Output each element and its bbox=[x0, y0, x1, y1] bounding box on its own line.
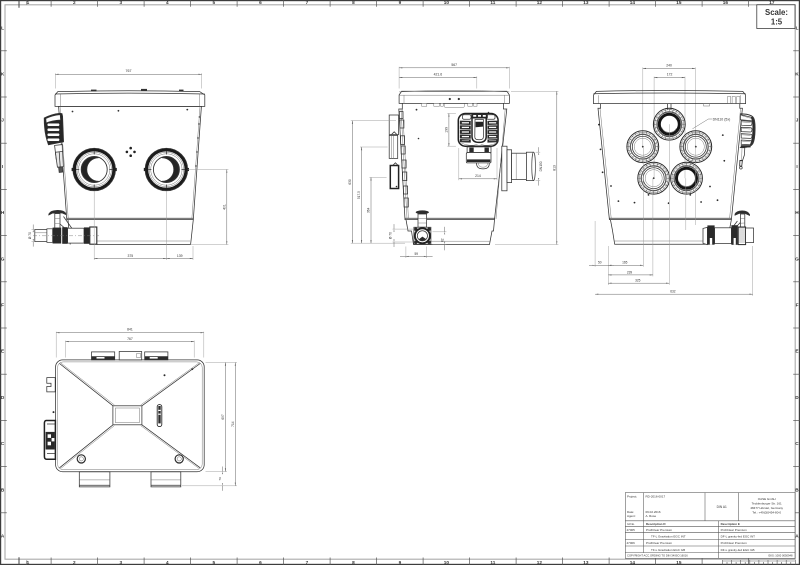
svg-text:Tel.: +49(0)5454-80-0: Tel.: +49(0)5454-80-0 bbox=[752, 511, 781, 515]
svg-text:3: 3 bbox=[119, 560, 122, 565]
svg-text:240: 240 bbox=[666, 63, 672, 67]
svg-text:EKS: 1000 0050948: EKS: 1000 0050948 bbox=[768, 554, 793, 558]
svg-text:OASE GmbH: OASE GmbH bbox=[758, 497, 776, 501]
svg-text:16: 16 bbox=[723, 0, 729, 5]
svg-text:J: J bbox=[1, 118, 4, 123]
svg-text:ProfiClear Premium: ProfiClear Premium bbox=[721, 541, 748, 545]
svg-text:DF-L gravity-fed EGC GB: DF-L gravity-fed EGC GB bbox=[721, 548, 755, 552]
svg-text:8: 8 bbox=[352, 0, 355, 5]
svg-text:5: 5 bbox=[212, 560, 215, 565]
svg-text:59: 59 bbox=[415, 252, 419, 256]
svg-text:813: 813 bbox=[552, 165, 556, 171]
svg-text:3: 3 bbox=[119, 0, 122, 5]
svg-text:714: 714 bbox=[231, 421, 235, 427]
svg-text:630: 630 bbox=[348, 179, 352, 185]
svg-text:ProfiClear Premium: ProfiClear Premium bbox=[646, 528, 673, 532]
svg-text:A. Rose: A. Rose bbox=[646, 514, 657, 518]
svg-text:15: 15 bbox=[676, 0, 682, 5]
svg-text:17: 17 bbox=[769, 0, 775, 5]
svg-text:L: L bbox=[796, 25, 799, 30]
svg-text:12: 12 bbox=[537, 560, 543, 565]
svg-text:J: J bbox=[796, 118, 799, 123]
svg-text:G: G bbox=[1, 256, 5, 261]
svg-text:Scale:: Scale: bbox=[765, 8, 788, 17]
svg-text:401: 401 bbox=[222, 204, 226, 210]
svg-text:199: 199 bbox=[445, 127, 449, 133]
svg-text:Agent:: Agent: bbox=[627, 514, 636, 518]
svg-text:214: 214 bbox=[475, 174, 481, 178]
svg-text:47005: 47005 bbox=[627, 528, 636, 532]
svg-text:I: I bbox=[796, 164, 797, 169]
svg-text:DN110 (5x): DN110 (5x) bbox=[713, 117, 731, 121]
svg-text:5: 5 bbox=[212, 0, 215, 5]
svg-text:10: 10 bbox=[444, 0, 450, 5]
svg-text:Description D: Description D bbox=[646, 522, 666, 526]
svg-text:DF-L gravity-fed EGC INT: DF-L gravity-fed EGC INT bbox=[721, 534, 756, 538]
svg-text:7: 7 bbox=[306, 560, 309, 565]
svg-text:COPYRIGHT ACC.ORDING TO DIN 34: COPYRIGHT ACC.ORDING TO DIN 34/ISO 16016 bbox=[627, 554, 688, 558]
svg-text:Ø 70: Ø 70 bbox=[28, 232, 32, 239]
svg-text:F: F bbox=[796, 303, 799, 308]
svg-text:325: 325 bbox=[635, 279, 641, 283]
svg-text:G: G bbox=[795, 256, 799, 261]
svg-text:4: 4 bbox=[166, 560, 169, 565]
svg-text:ProfiClear Premium: ProfiClear Premium bbox=[721, 528, 748, 532]
svg-text:2: 2 bbox=[73, 0, 76, 5]
svg-text:139: 139 bbox=[177, 254, 183, 258]
svg-text:6: 6 bbox=[259, 0, 262, 5]
svg-text:697: 697 bbox=[221, 414, 225, 420]
svg-text:1:5: 1:5 bbox=[771, 18, 783, 27]
svg-text:165: 165 bbox=[622, 261, 628, 265]
svg-text:15: 15 bbox=[676, 560, 682, 565]
svg-text:ProfiClear Premium: ProfiClear Premium bbox=[646, 541, 673, 545]
svg-text:14: 14 bbox=[630, 560, 636, 565]
svg-text:11: 11 bbox=[490, 560, 495, 565]
svg-text:172: 172 bbox=[667, 73, 673, 77]
svg-text:10: 10 bbox=[444, 560, 450, 565]
svg-text:4: 4 bbox=[166, 0, 169, 5]
svg-text:DIN A1: DIN A1 bbox=[717, 505, 727, 509]
svg-text:364: 364 bbox=[367, 207, 371, 213]
svg-text:9: 9 bbox=[399, 0, 402, 5]
svg-text:2: 2 bbox=[73, 560, 76, 565]
svg-text:632: 632 bbox=[670, 290, 676, 294]
svg-text:9: 9 bbox=[399, 560, 402, 565]
svg-text:767: 767 bbox=[127, 337, 133, 341]
svg-text:DN150: DN150 bbox=[539, 161, 543, 171]
svg-text:48477 Hörstel, Germany: 48477 Hörstel, Germany bbox=[750, 506, 783, 510]
svg-text:375: 375 bbox=[127, 254, 133, 258]
svg-text:TF-L Gravitation EGC GB: TF-L Gravitation EGC GB bbox=[651, 548, 685, 552]
svg-text:RD-2016-0017: RD-2016-0017 bbox=[646, 495, 666, 499]
svg-text:E: E bbox=[795, 349, 798, 354]
svg-text:12: 12 bbox=[537, 0, 543, 5]
svg-text:Date:: Date: bbox=[627, 510, 634, 514]
svg-text:E: E bbox=[1, 349, 4, 354]
svg-text:517.5: 517.5 bbox=[357, 191, 361, 199]
svg-text:841: 841 bbox=[127, 328, 133, 332]
svg-text:567: 567 bbox=[451, 63, 457, 67]
svg-text:13: 13 bbox=[583, 560, 589, 565]
svg-text:767: 767 bbox=[126, 69, 132, 73]
svg-text:7: 7 bbox=[306, 0, 309, 5]
svg-text:TF-L Gravitation EGC INT: TF-L Gravitation EGC INT bbox=[651, 534, 686, 538]
svg-text:8: 8 bbox=[352, 560, 355, 565]
svg-text:62: 62 bbox=[440, 238, 444, 242]
svg-text:79: 79 bbox=[218, 477, 222, 481]
svg-text:F: F bbox=[1, 303, 4, 308]
svg-text:14: 14 bbox=[630, 0, 636, 5]
svg-text:47006: 47006 bbox=[627, 541, 636, 545]
svg-text:I: I bbox=[2, 164, 3, 169]
svg-text:11: 11 bbox=[490, 0, 495, 5]
svg-text:Description E: Description E bbox=[721, 522, 740, 526]
svg-text:239: 239 bbox=[627, 270, 633, 274]
svg-text:09.02.2016: 09.02.2016 bbox=[646, 510, 661, 514]
svg-text:Id.No.: Id.No. bbox=[627, 522, 635, 526]
svg-text:Ø 70: Ø 70 bbox=[389, 232, 393, 239]
svg-text:50: 50 bbox=[598, 261, 602, 265]
svg-text:Tecklenburger Str. 161: Tecklenburger Str. 161 bbox=[752, 502, 782, 506]
svg-text:6: 6 bbox=[259, 560, 262, 565]
svg-text:Project:: Project: bbox=[627, 495, 637, 499]
svg-text:L: L bbox=[1, 25, 4, 30]
svg-text:421.6: 421.6 bbox=[434, 73, 443, 77]
svg-text:13: 13 bbox=[583, 0, 589, 5]
